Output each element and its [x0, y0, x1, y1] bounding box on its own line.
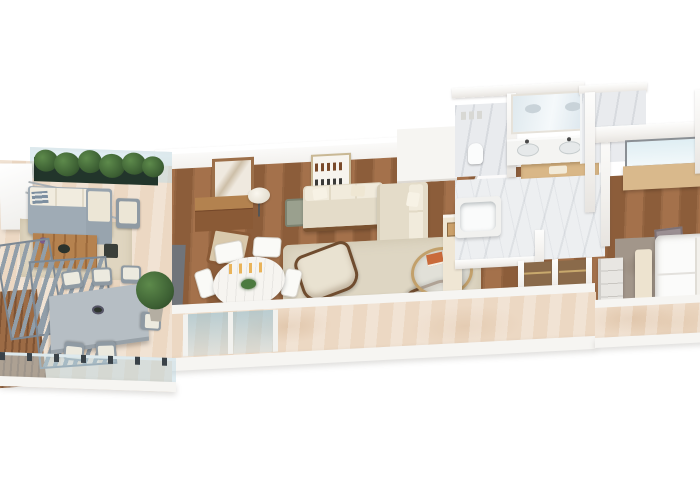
lounge-chair-pad [119, 201, 137, 224]
bath-right-wall [601, 126, 610, 246]
hall-closet-wall [397, 126, 457, 183]
toilet [468, 143, 483, 165]
table-bowl [58, 244, 70, 253]
floorplan-scene [0, 0, 700, 500]
bar-bottles [315, 162, 343, 171]
terrace-door-reflection-1 [183, 312, 233, 357]
striped-pillow [31, 191, 48, 204]
nook-side-wall [585, 92, 595, 213]
hedge-plant-4 [99, 153, 125, 178]
outdoor-chair-1 [61, 269, 84, 290]
dining-centerpiece [92, 305, 104, 314]
desk-nook-surface [623, 162, 700, 190]
hedge-plant-6 [142, 156, 164, 178]
apartment-slab [155, 0, 700, 430]
shelf-towels [549, 165, 567, 174]
terrace-lounge [0, 140, 172, 406]
hedge-plant-2 [54, 152, 80, 177]
terrace-door-reflection-2 [233, 310, 278, 354]
outdoor-chair-2 [91, 267, 112, 286]
right-edge-wall [695, 89, 700, 174]
throw-pillow-3 [406, 192, 420, 207]
bathtub-basin [460, 201, 496, 232]
potted-plant [136, 271, 174, 310]
throw-pillow-2 [350, 185, 365, 197]
chaise-cushion [88, 191, 110, 222]
dining-chair-2 [252, 237, 282, 258]
wc-shelf-items [461, 111, 483, 120]
candles [229, 262, 269, 274]
